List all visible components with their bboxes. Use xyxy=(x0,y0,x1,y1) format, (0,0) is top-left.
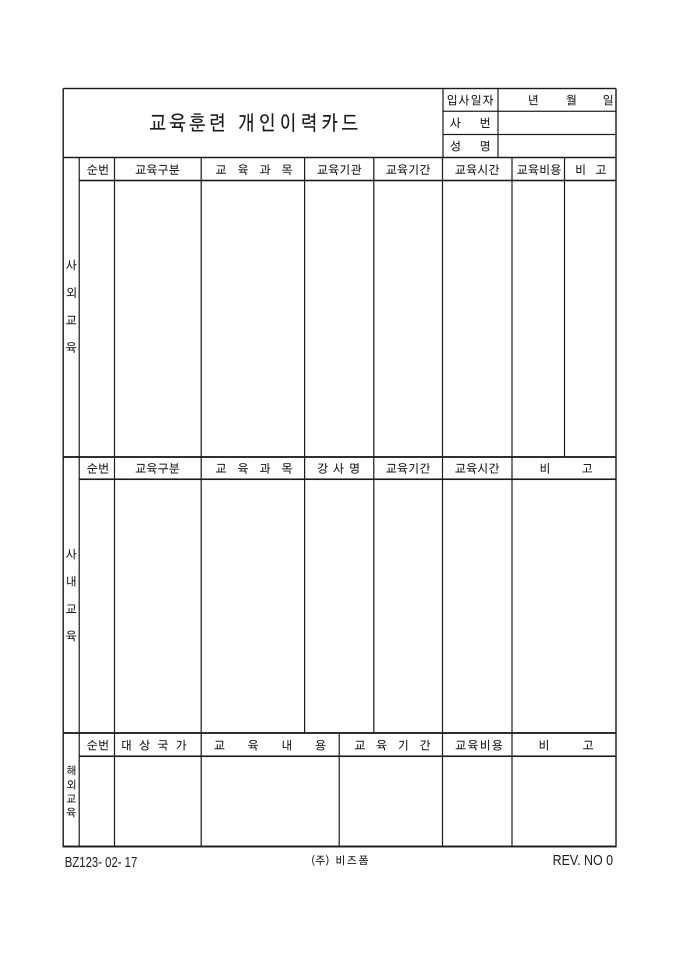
svg-text:REV. NO 0: REV. NO 0 xyxy=(553,853,614,869)
svg-text:BZ123- 02- 17: BZ123- 02- 17 xyxy=(65,855,138,871)
